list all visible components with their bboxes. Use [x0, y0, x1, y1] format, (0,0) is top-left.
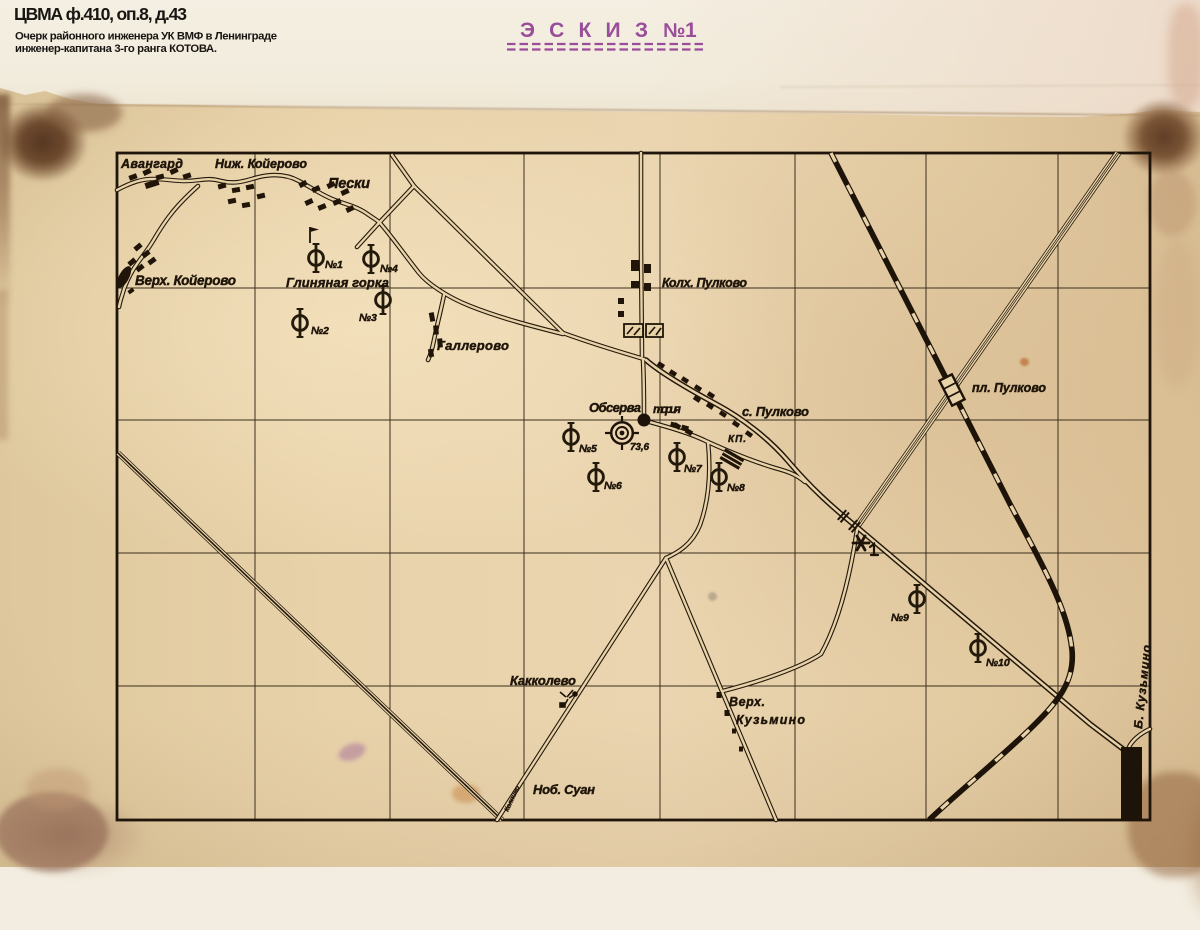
svg-text:Ноб. Суан: Ноб. Суан: [533, 782, 595, 797]
svg-text:№10: №10: [986, 657, 1010, 669]
svg-text:Кузьмино: Кузьмино: [736, 713, 805, 727]
svg-text:Обсерва: Обсерва: [589, 400, 641, 415]
svg-text:Верх.: Верх.: [729, 695, 765, 709]
svg-text:Пески: Пески: [328, 176, 372, 192]
svg-text:Э С К И З: Э С К И З: [520, 19, 648, 42]
svg-text:Какколево: Какколево: [510, 673, 576, 688]
svg-text:пл. Пулково: пл. Пулково: [972, 381, 1046, 395]
svg-text:1: 1: [685, 19, 697, 42]
svg-text:с. Пулково: с. Пулково: [742, 404, 809, 419]
svg-text:№4: №4: [380, 263, 398, 275]
svg-text:инженер-капитана 3-го ранга К: инженер-капитана 3-го ранга КОТОВА.: [15, 43, 217, 55]
svg-text:№5: №5: [579, 443, 597, 455]
svg-text:тория: тория: [653, 402, 681, 416]
svg-text:Колпино: Колпино: [503, 785, 521, 813]
svg-text:КП.: КП.: [728, 434, 746, 445]
svg-text:№3: №3: [359, 312, 377, 324]
svg-text:Авангард: Авангард: [120, 157, 183, 171]
svg-text:№2: №2: [311, 325, 329, 337]
svg-text:Верх. Койерово: Верх. Койерово: [135, 273, 236, 288]
svg-text:№8: №8: [727, 482, 745, 494]
svg-text:Галлерово: Галлерово: [437, 338, 509, 353]
svg-text:№6: №6: [604, 480, 622, 492]
svg-text:№1: №1: [325, 259, 343, 271]
svg-text:Ниж. Койерово: Ниж. Койерово: [215, 157, 307, 171]
svg-text:№: №: [663, 20, 685, 42]
svg-text:Глиняная горка: Глиняная горка: [286, 275, 389, 290]
svg-text:№7: №7: [684, 463, 703, 475]
svg-text:ЦВМА ф.410, оп.8, д.43: ЦВМА ф.410, оп.8, д.43: [14, 4, 187, 24]
svg-text:Колх. Пулково: Колх. Пулково: [662, 276, 747, 290]
svg-text:73,6: 73,6: [630, 442, 649, 453]
svg-text:Очерк районного инженера УК ВМ: Очерк районного инженера УК ВМФ в Ленинг…: [15, 31, 277, 43]
svg-text:№9: №9: [891, 612, 909, 624]
